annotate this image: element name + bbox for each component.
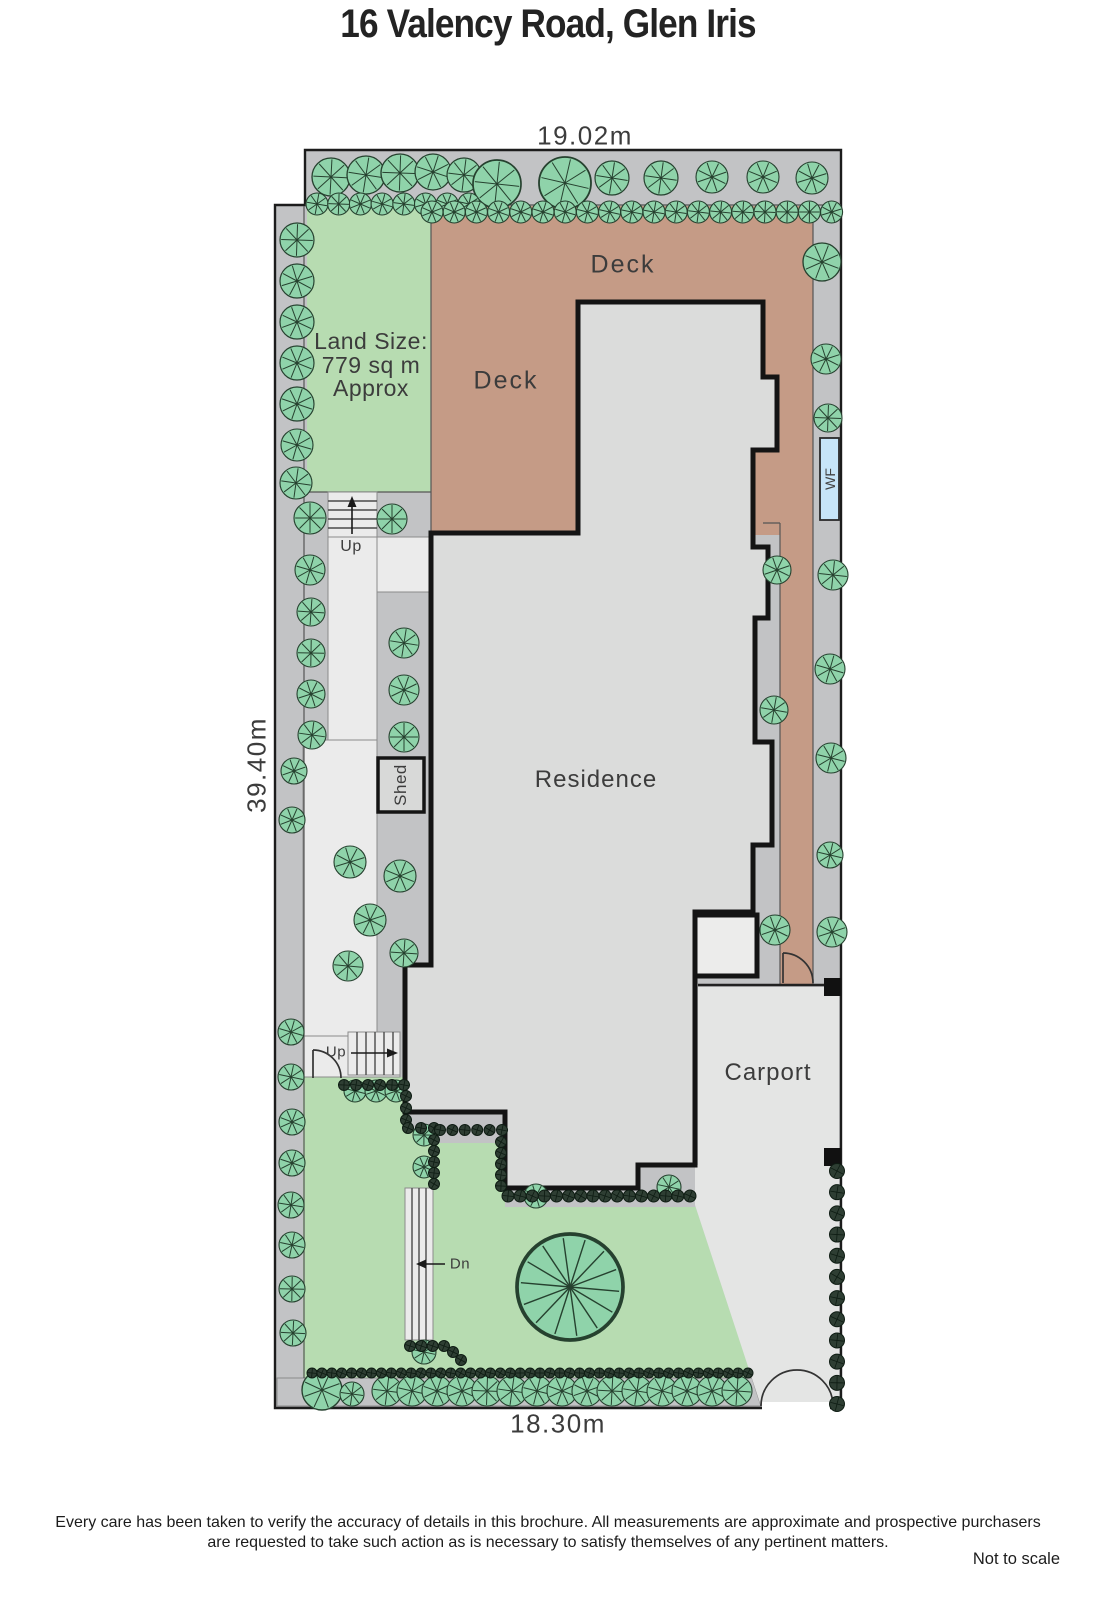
shrub-icon	[416, 1368, 426, 1378]
shrub-icon	[429, 1168, 440, 1179]
tree-icon	[665, 201, 687, 223]
deck-side-path	[780, 520, 813, 985]
tree-icon	[818, 560, 848, 590]
label-carport: Carport	[724, 1059, 811, 1087]
shrub-icon	[830, 1333, 845, 1348]
shrub-icon	[429, 1135, 440, 1146]
shrub-icon	[427, 1341, 438, 1352]
shrub-icon	[648, 1190, 660, 1202]
shrub-icon	[396, 1368, 406, 1378]
tree-icon	[280, 264, 314, 298]
side-path-upper	[328, 537, 377, 740]
tree-icon	[279, 1150, 305, 1176]
land-size-line1: Land Size:	[314, 330, 428, 354]
tree-icon	[279, 1109, 305, 1135]
tree-icon	[443, 201, 465, 223]
label-water-feature: WF	[822, 468, 838, 490]
tree-icon	[278, 1192, 304, 1218]
tree-icon	[798, 201, 820, 223]
shrub-icon	[623, 1190, 635, 1202]
tree-icon	[815, 654, 845, 684]
porch	[695, 915, 757, 976]
shrub-icon	[672, 1190, 684, 1202]
shrub-icon	[830, 1269, 845, 1284]
tree-icon	[281, 758, 307, 784]
tree-icon	[644, 161, 678, 195]
shrub-icon	[363, 1080, 374, 1091]
tree-icon	[532, 201, 554, 223]
brochure-page: 16 Valency Road, Glen Iris 19.02m 39.40m…	[0, 0, 1096, 1600]
label-residence: Residence	[535, 766, 657, 794]
shrub-icon	[435, 1125, 446, 1136]
label-up-bottom: Up	[326, 1044, 346, 1061]
shrub-icon	[429, 1146, 440, 1157]
tree-icon	[747, 161, 779, 193]
tree-icon	[814, 404, 842, 432]
shrub-icon	[535, 1368, 545, 1378]
tree-icon	[371, 193, 393, 215]
shrub-icon	[496, 1181, 507, 1192]
tree-icon	[312, 158, 350, 196]
shrub-icon	[713, 1368, 723, 1378]
shrub-icon	[703, 1368, 713, 1378]
scale-note: Not to scale	[973, 1550, 1060, 1569]
shrub-icon	[357, 1368, 367, 1378]
shrub-icon	[429, 1157, 440, 1168]
shrub-icon	[366, 1368, 376, 1378]
tree-icon	[760, 915, 790, 945]
shrub-icon	[684, 1368, 694, 1378]
shrub-icon	[830, 1312, 845, 1327]
disclaimer-line1: Every care has been taken to verify the …	[0, 1513, 1096, 1533]
tree-icon	[488, 201, 510, 223]
tree-icon	[347, 156, 385, 194]
shrub-icon	[497, 1125, 508, 1136]
shrub-icon	[563, 1190, 575, 1202]
shrub-icon	[375, 1080, 386, 1091]
shrub-icon	[830, 1185, 845, 1200]
tree-icon	[465, 201, 487, 223]
tree-icon	[817, 842, 843, 868]
tree-icon	[696, 161, 728, 193]
disclaimer-line2: are requested to take such action as is …	[0, 1533, 1096, 1553]
shrub-icon	[505, 1368, 515, 1378]
shrub-icon	[337, 1368, 347, 1378]
tree-icon	[776, 201, 798, 223]
tree-icon	[297, 598, 325, 626]
tree-icon	[599, 201, 621, 223]
shrub-icon	[307, 1368, 317, 1378]
shrub-icon	[436, 1368, 446, 1378]
tree-icon	[297, 639, 325, 667]
shrub-icon	[538, 1190, 550, 1202]
shrub-icon	[459, 1125, 470, 1136]
shrub-icon	[347, 1368, 357, 1378]
tree-icon	[280, 223, 314, 257]
tree-icon	[280, 467, 312, 499]
shrub-icon	[429, 1179, 440, 1190]
tree-icon	[415, 154, 451, 190]
shrub-icon	[456, 1355, 467, 1366]
shrub-icon	[830, 1354, 845, 1369]
tree-icon	[334, 846, 366, 878]
tree-icon	[281, 429, 313, 461]
tree-icon	[295, 555, 325, 585]
tree-icon	[803, 243, 841, 281]
tree-icon	[333, 951, 363, 981]
tree-icon	[554, 201, 576, 223]
shrub-icon	[515, 1368, 525, 1378]
tree-icon	[389, 675, 419, 705]
tree-icon	[278, 1019, 304, 1045]
shrub-icon	[472, 1125, 483, 1136]
label-shed: Shed	[391, 764, 411, 806]
shrub-icon	[339, 1080, 350, 1091]
tree-icon	[763, 556, 791, 584]
tree-icon	[389, 628, 419, 658]
shrub-icon	[399, 1080, 410, 1091]
land-size-line3: Approx	[314, 377, 428, 401]
tree-icon	[816, 743, 846, 773]
shrub-icon	[405, 1341, 416, 1352]
tree-icon	[294, 502, 326, 534]
shrub-icon	[416, 1341, 427, 1352]
shrub-icon	[555, 1368, 565, 1378]
shrub-icon	[387, 1080, 398, 1091]
tree-icon	[298, 721, 326, 749]
tree-icon	[354, 904, 386, 936]
stairs-up-top-icon	[328, 492, 377, 537]
tree-icon	[817, 917, 847, 947]
tree-icon	[710, 201, 732, 223]
shrub-icon	[575, 1368, 585, 1378]
shrub-icon	[624, 1368, 634, 1378]
tree-icon	[390, 939, 418, 967]
shrub-icon	[475, 1368, 485, 1378]
shrub-icon	[484, 1125, 495, 1136]
shrub-icon	[584, 1368, 594, 1378]
boundary-post	[824, 978, 841, 996]
shrub-icon	[614, 1368, 624, 1378]
tree-icon	[510, 201, 532, 223]
tree-icon	[643, 201, 665, 223]
shrub-icon	[447, 1125, 458, 1136]
shrub-icon	[830, 1227, 845, 1242]
shrub-icon	[830, 1291, 845, 1306]
tree-icon	[811, 344, 841, 374]
shrub-icon	[654, 1368, 664, 1378]
tree-icon	[595, 161, 629, 195]
shrub-icon	[830, 1397, 845, 1412]
shrub-icon	[660, 1190, 672, 1202]
shrub-icon	[733, 1368, 743, 1378]
tree-icon	[517, 1234, 623, 1340]
land-size-line2: 779 sq m	[314, 354, 428, 378]
tree-icon	[621, 201, 643, 223]
shrub-icon	[674, 1368, 684, 1378]
shrub-icon	[723, 1368, 733, 1378]
shrub-icon	[403, 1123, 414, 1134]
shrub-icon	[386, 1368, 396, 1378]
tree-icon	[381, 154, 419, 192]
shrub-icon	[446, 1368, 456, 1378]
shrub-icon	[485, 1368, 495, 1378]
site-plan	[0, 0, 1096, 1600]
dimension-side: 39.40m	[242, 717, 273, 813]
stairs-up-bottom-icon	[348, 1032, 400, 1075]
tree-icon	[279, 807, 305, 833]
shrub-icon	[565, 1368, 575, 1378]
tree-icon	[328, 193, 350, 215]
shrub-icon	[351, 1080, 362, 1091]
tree-icon	[340, 1382, 364, 1406]
shrub-icon	[416, 1123, 427, 1134]
tree-icon	[754, 201, 776, 223]
tree-icon	[576, 201, 598, 223]
shrub-icon	[496, 1170, 507, 1181]
shrub-icon	[401, 1103, 412, 1114]
shrub-icon	[830, 1164, 845, 1179]
tree-icon	[393, 193, 415, 215]
tree-icon	[349, 193, 371, 215]
tree-icon	[687, 201, 709, 223]
label-up-top: Up	[340, 538, 361, 556]
shrub-icon	[327, 1368, 337, 1378]
shrub-icon	[496, 1148, 507, 1159]
tree-icon	[279, 1276, 305, 1302]
shrub-icon	[496, 1159, 507, 1170]
shrub-icon	[604, 1368, 614, 1378]
shrub-icon	[526, 1190, 538, 1202]
tree-icon	[280, 1320, 306, 1346]
shrub-icon	[466, 1368, 476, 1378]
tree-icon	[280, 305, 314, 339]
shrub-icon	[611, 1190, 623, 1202]
tree-icon	[732, 201, 754, 223]
shrub-icon	[551, 1190, 563, 1202]
shrub-icon	[635, 1190, 647, 1202]
tree-icon	[796, 162, 828, 194]
page-title: 16 Valency Road, Glen Iris	[66, 2, 1030, 47]
tree-icon	[421, 201, 443, 223]
shrub-icon	[575, 1190, 587, 1202]
shrub-icon	[426, 1368, 436, 1378]
tree-icon	[760, 696, 788, 724]
shrub-icon	[684, 1190, 696, 1202]
shrub-icon	[599, 1190, 611, 1202]
shrub-icon	[693, 1368, 703, 1378]
shrub-icon	[594, 1368, 604, 1378]
shrub-icon	[495, 1368, 505, 1378]
shrub-icon	[502, 1190, 514, 1202]
dimension-bottom: 18.30m	[510, 1409, 606, 1440]
tree-icon	[384, 860, 416, 892]
tree-icon	[377, 504, 407, 534]
tree-icon	[278, 1064, 304, 1090]
label-dn: Dn	[450, 1256, 470, 1273]
tree-icon	[821, 201, 843, 223]
tree-icon	[279, 1232, 305, 1258]
shrub-icon	[830, 1248, 845, 1263]
label-deck-upper: Deck	[591, 251, 656, 280]
land-size-note: Land Size: 779 sq m Approx	[314, 330, 428, 401]
shrub-icon	[644, 1368, 654, 1378]
shrub-icon	[664, 1368, 674, 1378]
tree-icon	[389, 722, 419, 752]
tree-icon	[306, 193, 328, 215]
shrub-icon	[545, 1368, 555, 1378]
label-deck-lower: Deck	[474, 367, 539, 396]
shrub-icon	[525, 1368, 535, 1378]
shrub-icon	[496, 1137, 507, 1148]
tree-icon	[297, 680, 325, 708]
side-path-lower	[303, 740, 377, 1036]
shrub-icon	[634, 1368, 644, 1378]
shrub-icon	[317, 1368, 327, 1378]
shrub-icon	[514, 1190, 526, 1202]
dimension-top: 19.02m	[537, 121, 633, 152]
shrub-icon	[456, 1368, 466, 1378]
shrub-icon	[743, 1368, 753, 1378]
tree-icon	[280, 387, 314, 421]
shrub-icon	[401, 1091, 412, 1102]
tree-icon	[280, 346, 314, 380]
shrub-icon	[830, 1375, 845, 1390]
shrub-icon	[406, 1368, 416, 1378]
shrub-icon	[830, 1206, 845, 1221]
path-landing-upper	[377, 537, 431, 592]
shrub-icon	[376, 1368, 386, 1378]
tree-icon	[722, 1376, 752, 1406]
shrub-icon	[587, 1190, 599, 1202]
